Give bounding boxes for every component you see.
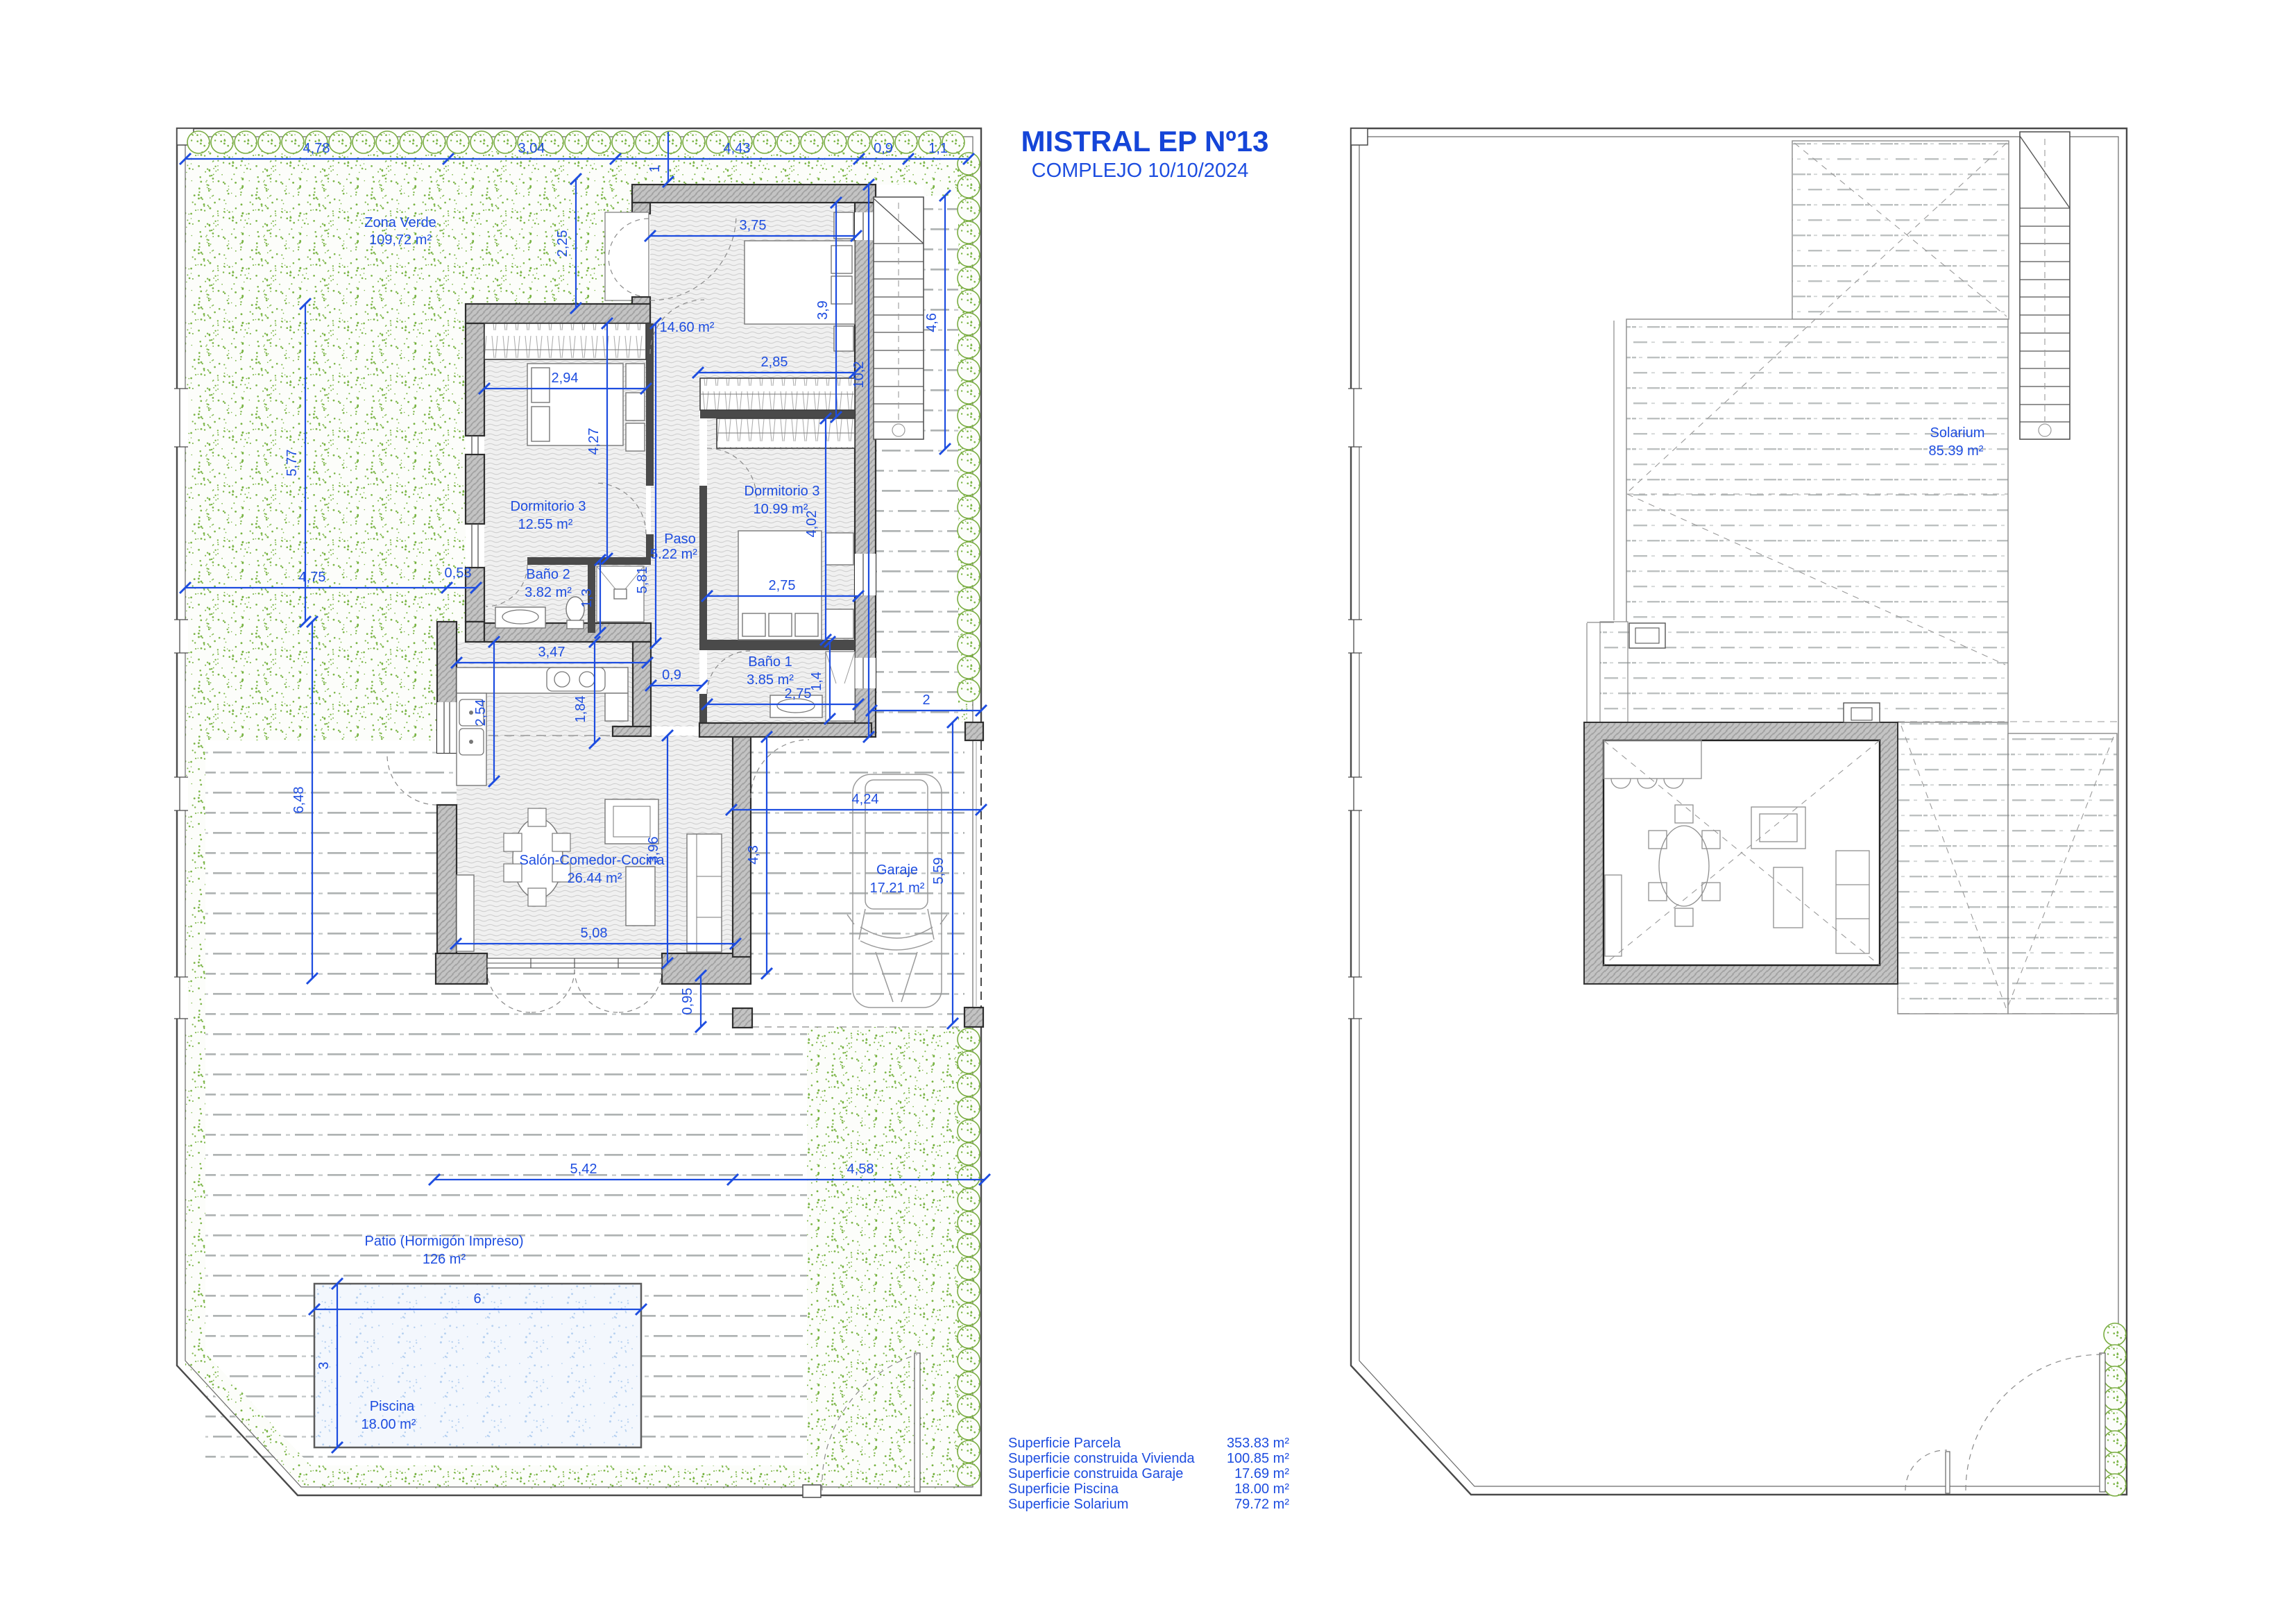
svg-text:3.82 m²: 3.82 m² <box>525 585 572 600</box>
svg-text:5,59: 5,59 <box>931 858 946 885</box>
svg-text:10.99 m²: 10.99 m² <box>754 502 808 517</box>
svg-text:5.22 m²: 5.22 m² <box>650 547 697 562</box>
svg-text:Superficie Solarium: Superficie Solarium <box>1008 1497 1128 1512</box>
svg-text:18.00 m²: 18.00 m² <box>1234 1481 1289 1497</box>
svg-text:3,9: 3,9 <box>815 300 831 320</box>
svg-text:2,94: 2,94 <box>552 371 579 386</box>
svg-text:1,3: 1,3 <box>579 588 595 608</box>
svg-text:Dormitorio 3: Dormitorio 3 <box>511 499 586 514</box>
svg-text:3,75: 3,75 <box>740 218 767 233</box>
svg-text:Superficie construida Garaje: Superficie construida Garaje <box>1008 1466 1183 1481</box>
svg-text:2,25: 2,25 <box>555 230 570 257</box>
svg-text:Superficie construida Vivienda: Superficie construida Vivienda <box>1008 1451 1196 1466</box>
svg-text:3,47: 3,47 <box>538 645 566 660</box>
svg-text:2,85: 2,85 <box>761 355 788 370</box>
svg-text:COMPLEJO 10/10/2024: COMPLEJO 10/10/2024 <box>1032 160 1249 182</box>
svg-text:4,43: 4,43 <box>724 141 751 156</box>
svg-text:Solarium: Solarium <box>1930 425 1985 441</box>
svg-text:Paso: Paso <box>664 532 696 547</box>
svg-text:Garaje: Garaje <box>876 863 918 878</box>
svg-text:2,75: 2,75 <box>785 686 812 702</box>
svg-text:4,24: 4,24 <box>852 792 879 807</box>
svg-text:Patio (Hormigón Impreso): Patio (Hormigón Impreso) <box>365 1234 524 1249</box>
svg-text:Piscina: Piscina <box>370 1399 415 1414</box>
svg-text:0,9: 0,9 <box>662 668 681 683</box>
svg-text:3.85 m²: 3.85 m² <box>747 672 794 688</box>
svg-text:12.55 m²: 12.55 m² <box>518 517 573 532</box>
svg-text:109,72 m²: 109,72 m² <box>369 232 432 248</box>
svg-text:Superficie Piscina: Superficie Piscina <box>1008 1481 1119 1497</box>
svg-text:5,77: 5,77 <box>284 450 300 477</box>
svg-text:6,48: 6,48 <box>291 787 307 814</box>
svg-text:100.85 m²: 100.85 m² <box>1227 1451 1289 1466</box>
svg-text:4,78: 4,78 <box>303 141 330 156</box>
svg-text:14.60 m²: 14.60 m² <box>660 320 715 335</box>
svg-text:2,54: 2,54 <box>473 699 488 726</box>
svg-text:1,1: 1,1 <box>928 141 948 156</box>
svg-text:17.21 m²: 17.21 m² <box>870 881 925 896</box>
svg-text:MISTRAL EP Nº13: MISTRAL EP Nº13 <box>1021 125 1269 158</box>
svg-text:5,42: 5,42 <box>570 1162 597 1177</box>
svg-text:1,84: 1,84 <box>573 696 588 723</box>
svg-text:10,2: 10,2 <box>851 362 867 389</box>
svg-text:6: 6 <box>473 1291 481 1307</box>
svg-text:Baño 1: Baño 1 <box>748 654 792 670</box>
svg-text:Salón-Comedor-Cocina: Salón-Comedor-Cocina <box>520 853 665 868</box>
svg-text:353.83 m²: 353.83 m² <box>1227 1436 1289 1451</box>
svg-text:26.44 m²: 26.44 m² <box>568 871 622 886</box>
svg-text:17.69 m²: 17.69 m² <box>1234 1466 1289 1481</box>
svg-text:18.00 m²: 18.00 m² <box>362 1417 416 1432</box>
svg-text:5,08: 5,08 <box>581 926 608 941</box>
svg-text:0,9: 0,9 <box>874 141 893 156</box>
svg-text:4,27: 4,27 <box>586 428 602 455</box>
svg-text:0,53: 0,53 <box>445 566 472 581</box>
svg-text:2: 2 <box>922 692 930 708</box>
svg-text:3: 3 <box>316 1361 332 1369</box>
svg-text:79.72 m²: 79.72 m² <box>1234 1497 1289 1512</box>
svg-text:3,04: 3,04 <box>518 141 545 156</box>
svg-text:4,75: 4,75 <box>299 570 326 585</box>
svg-text:Zona Verde: Zona Verde <box>364 215 436 230</box>
svg-text:85.39 m²: 85.39 m² <box>1929 443 1984 459</box>
svg-text:Dormitorio 3: Dormitorio 3 <box>745 484 820 499</box>
svg-text:2,75: 2,75 <box>769 578 796 593</box>
svg-text:4,3: 4,3 <box>746 845 761 865</box>
svg-text:4,6: 4,6 <box>924 313 939 332</box>
svg-text:0,95: 0,95 <box>680 988 695 1015</box>
svg-text:5,81: 5,81 <box>635 567 650 594</box>
svg-text:Baño 2: Baño 2 <box>526 567 570 582</box>
svg-text:Superficie Parcela: Superficie Parcela <box>1008 1436 1121 1451</box>
svg-text:1: 1 <box>647 164 663 172</box>
svg-text:126 m²: 126 m² <box>423 1252 466 1267</box>
svg-text:4,58: 4,58 <box>847 1162 874 1177</box>
